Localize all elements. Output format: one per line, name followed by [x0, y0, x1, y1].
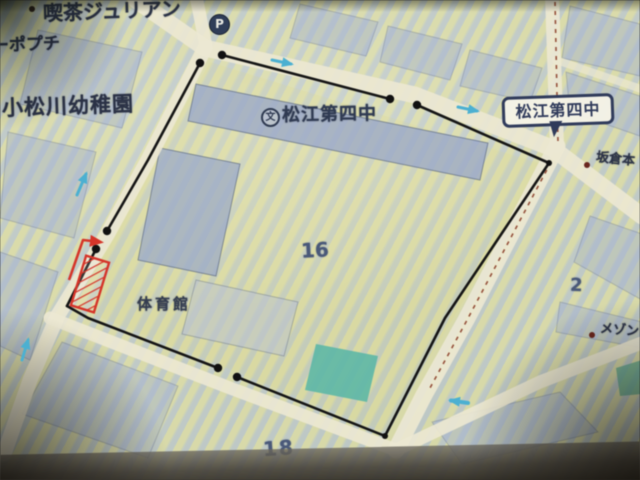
traffic-arrow: [77, 174, 86, 195]
boundary-segment: [67, 306, 218, 368]
traffic-arrow: [458, 107, 477, 111]
traffic-arrow: [272, 60, 291, 64]
boundary-segment: [222, 55, 390, 99]
boundary-vertex-dot: [103, 227, 111, 235]
boundary-vertex-dot: [413, 101, 421, 109]
boundary-vertex-dot: [196, 59, 204, 67]
boundary-segment: [417, 105, 549, 163]
boundary-vertex-dot: [386, 95, 394, 103]
annotations: [0, 0, 640, 480]
boundary-segment: [385, 163, 549, 436]
boundary-vertex-dot: [233, 373, 241, 381]
boundary-vertex-dot: [382, 433, 388, 439]
gate-hatch-marker: [71, 256, 109, 313]
boundary-segment: [237, 377, 385, 436]
traffic-arrows: [22, 60, 477, 403]
boundary-segment: [107, 63, 200, 231]
traffic-arrow: [451, 401, 468, 404]
boundary-vertex-dot: [214, 364, 222, 372]
boundary-vertex-dot: [218, 51, 226, 59]
boundary-vertex-dot: [546, 160, 552, 166]
boundary-vertex-dot: [92, 245, 100, 253]
map-photo: 喫茶ジュリアン ーポプチ 小松川幼稚園 文 松江第四中 体育館 坂倉本 メゾン …: [0, 0, 640, 480]
boundary-vertex-dots: [92, 51, 552, 439]
traffic-arrow: [22, 340, 28, 360]
